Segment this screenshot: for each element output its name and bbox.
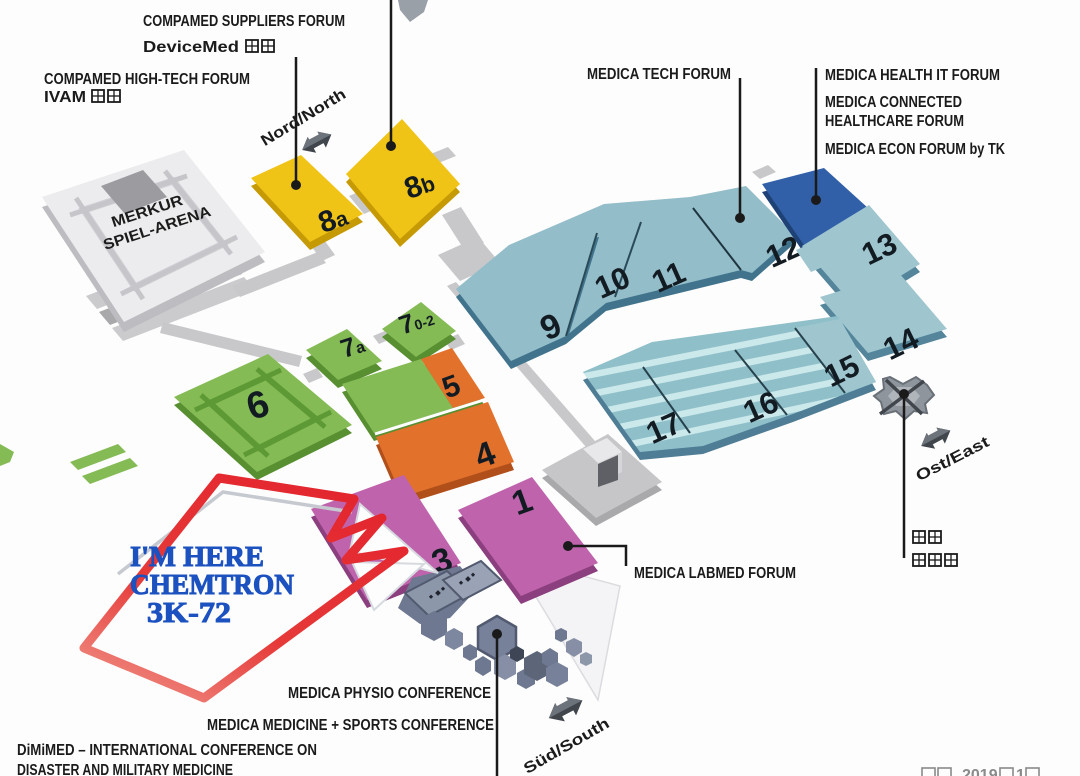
svg-text:MEDICA PHYSIO CONFERENCE: MEDICA PHYSIO CONFERENCE xyxy=(288,685,491,702)
svg-text:MEDICA TECH FORUM: MEDICA TECH FORUM xyxy=(587,66,731,83)
svg-text:IVAM: IVAM xyxy=(44,89,86,106)
svg-text:DiMiMED – INTERNATIONAL CONFER: DiMiMED – INTERNATIONAL CONFERENCE ON xyxy=(17,742,317,759)
svg-text:HEALTHCARE FORUM: HEALTHCARE FORUM xyxy=(825,113,964,130)
svg-text:3K-72: 3K-72 xyxy=(147,597,231,629)
svg-text:1: 1 xyxy=(1016,767,1025,776)
svg-text:MEDICA CONNECTED: MEDICA CONNECTED xyxy=(825,94,962,111)
svg-text:2019: 2019 xyxy=(962,767,998,776)
svg-text:COMPAMED SUPPLIERS FORUM: COMPAMED SUPPLIERS FORUM xyxy=(143,13,345,30)
svg-text:COMPAMED HIGH-TECH FORUM: COMPAMED HIGH-TECH FORUM xyxy=(44,71,250,88)
svg-text:MEDICA HEALTH IT FORUM: MEDICA HEALTH IT FORUM xyxy=(825,67,1000,84)
svg-text:MEDICA LABMED FORUM: MEDICA LABMED FORUM xyxy=(634,565,796,582)
svg-text:DeviceMed: DeviceMed xyxy=(143,39,239,56)
svg-text:DISASTER AND MILITARY MEDICINE: DISASTER AND MILITARY MEDICINE xyxy=(17,762,233,776)
svg-text:MEDICA MEDICINE + SPORTS CONFE: MEDICA MEDICINE + SPORTS CONFERENCE xyxy=(207,717,494,734)
svg-text:MEDICA ECON FORUM by TK: MEDICA ECON FORUM by TK xyxy=(825,141,1006,158)
